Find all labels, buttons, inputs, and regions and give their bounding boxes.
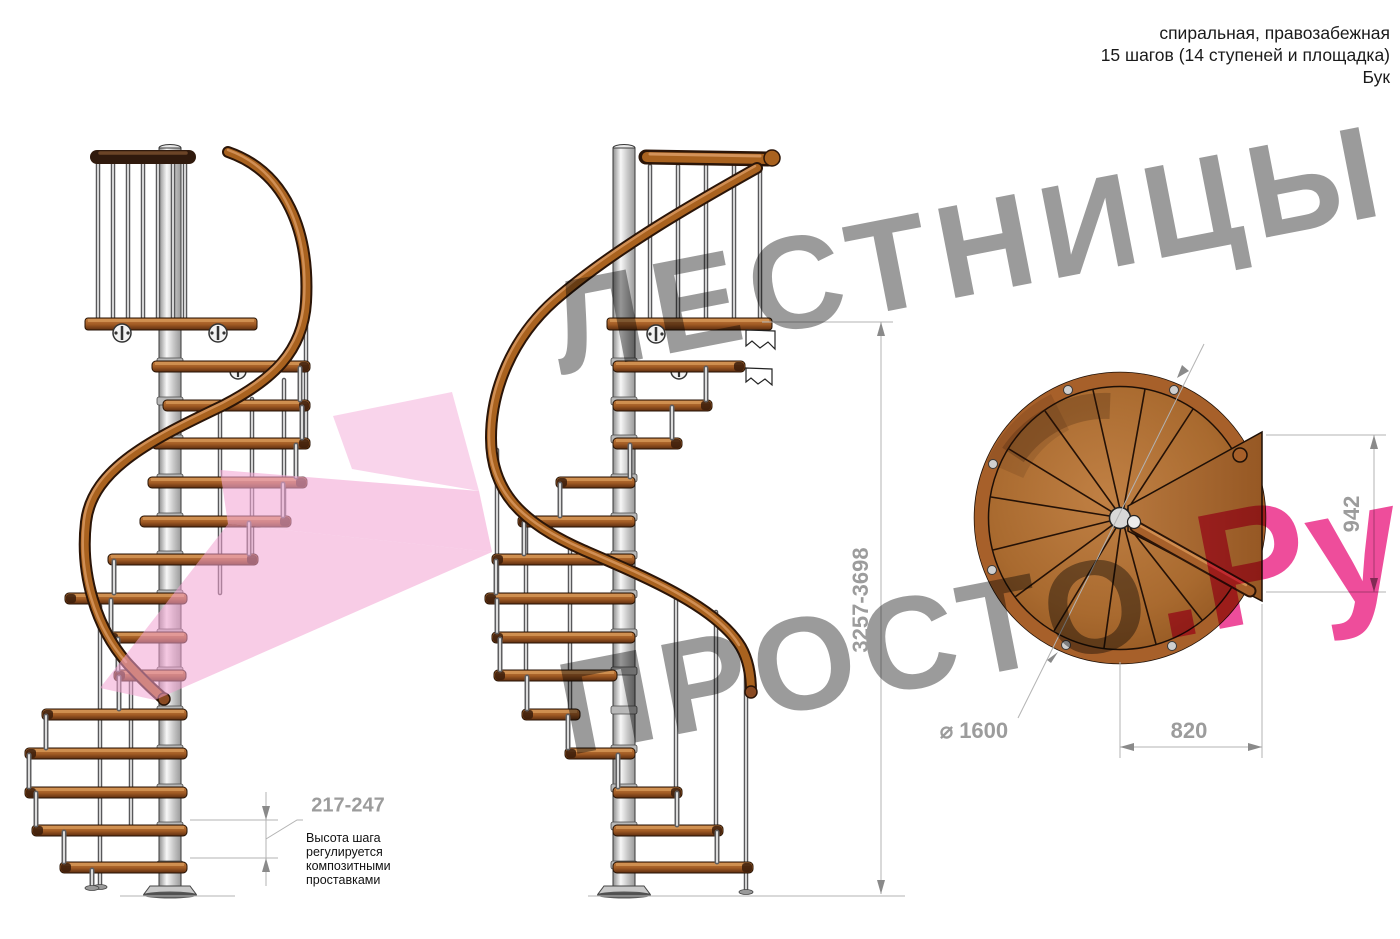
title-block: спиральная, правозабежная 15 шагов (14 с…	[1101, 22, 1390, 88]
dim-landing-depth: 820	[1171, 718, 1208, 744]
title-type: спиральная, правозабежная	[1101, 22, 1390, 44]
dim-total-height: 3257-3698	[848, 547, 874, 652]
technical-drawing-canvas: ЛЕСТНИЦЫ ПРОСТО.Ру спиральная, правозабе…	[0, 0, 1400, 939]
step-height-annotation: Высота шага регулируется композитными пр…	[306, 831, 391, 887]
dim-step-height: 217-247	[311, 795, 384, 818]
watermark-arrow-logo	[0, 0, 1400, 939]
dim-diameter: ⌀ 1600	[940, 718, 1008, 744]
title-steps: 15 шагов (14 ступеней и площадка)	[1101, 44, 1390, 66]
dim-landing-width: 942	[1339, 496, 1365, 533]
title-material: Бук	[1101, 66, 1390, 88]
